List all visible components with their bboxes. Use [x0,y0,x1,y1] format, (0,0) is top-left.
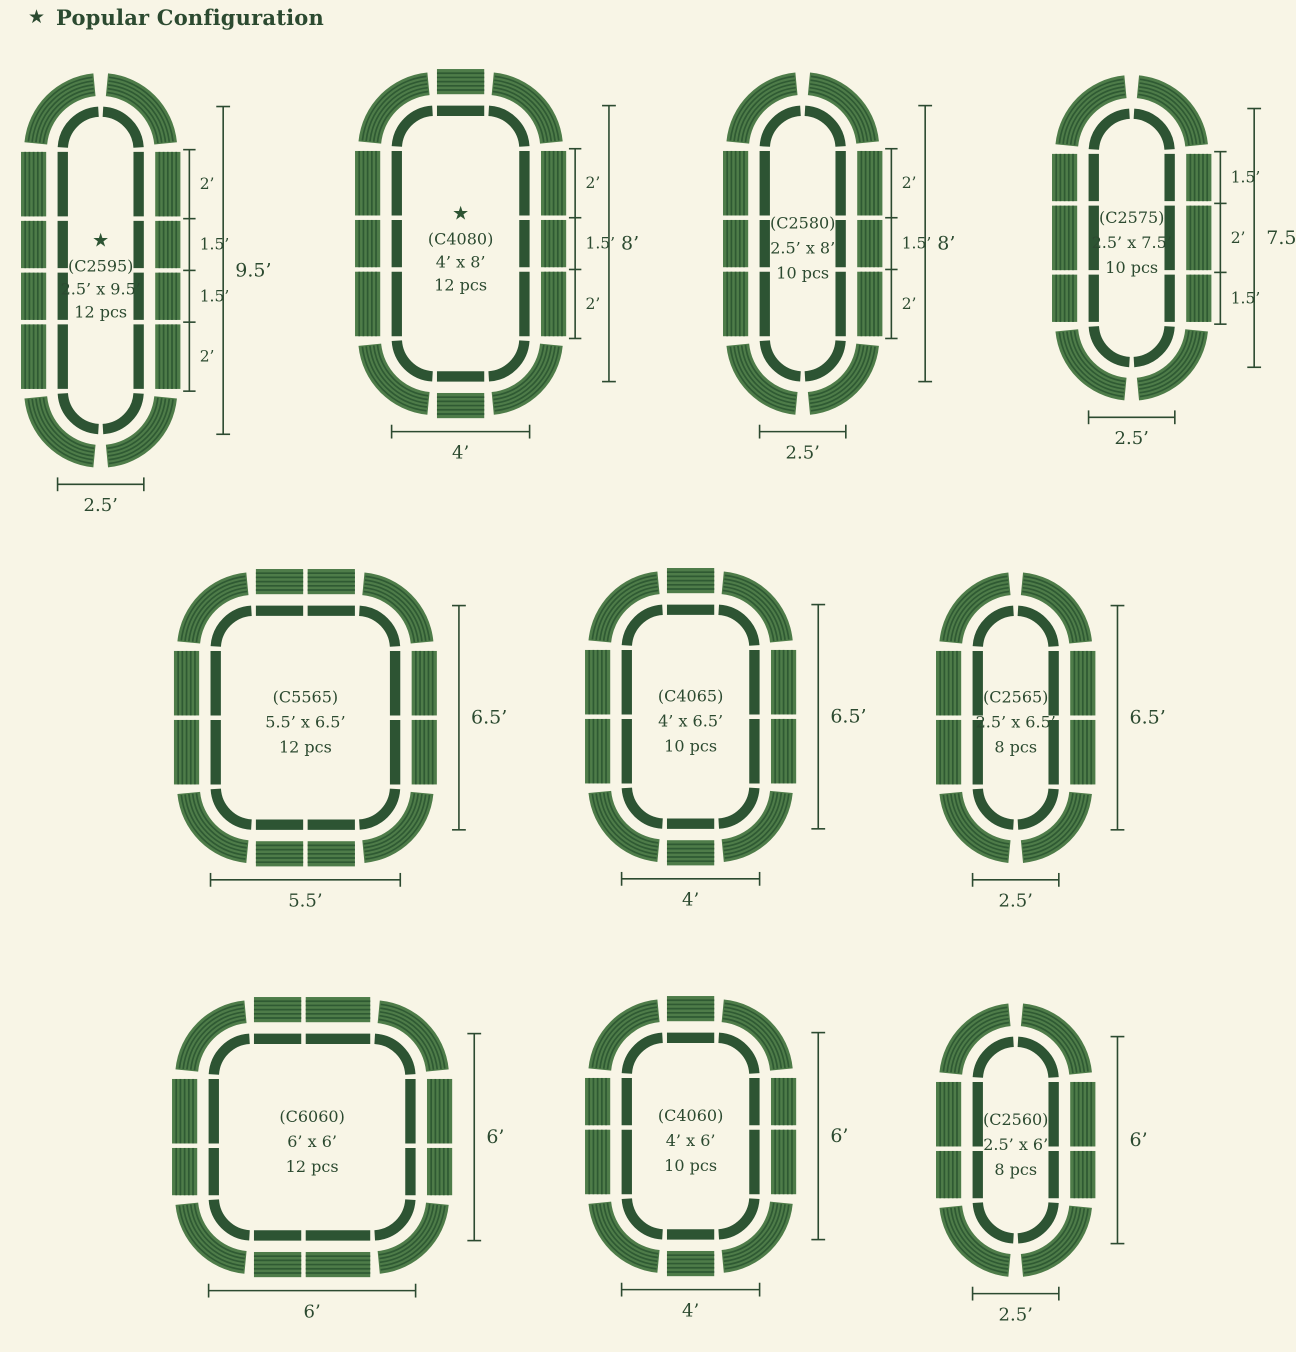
config-size-label: 2.5’ x 7.5’ [1092,233,1172,252]
config-pcs-label: 8 pcs [994,1160,1037,1179]
config-code-label: (C2560) [983,1110,1048,1129]
outline-corner [719,1038,755,1074]
outline-corner [216,789,252,825]
outline-corner [103,112,139,148]
dimensions: 6’4’ [622,1033,849,1322]
height-dimension-label: 6’ [1130,1129,1148,1151]
side-tick-label: 1.5’ [1231,289,1261,307]
config-size-label: 4’ x 8’ [436,253,486,272]
config-labels: (C5565)5.5’ x 6.5’12 pcs [265,688,345,757]
config-size-label: 5.5’ x 6.5’ [265,713,345,732]
outline-corner [627,610,663,646]
config-pcs-label: 10 pcs [664,1156,717,1175]
side-tick-label: 2’ [585,174,600,192]
config-pcs-label: 12 pcs [279,738,332,757]
config-code-label: (C2580) [770,214,835,233]
height-dimension-label: 6’ [486,1126,504,1148]
width-dimension-label: 2.5’ [999,891,1033,912]
config-pcs-label: 12 pcs [74,302,127,321]
outline-corner [397,341,433,377]
config-C6060-diagram: 6’6’(C6060)6’ x 6’12 pcs [162,987,531,1349]
side-tick-label: 2’ [1231,229,1246,247]
config-C2580-diagram: 8’2’1.5’2’2.5’(C2580)2.5’ x 8’10 pcs [713,59,996,490]
dimensions: 6.5’5.5’ [211,606,508,912]
config-code-label: (C4080) [428,230,493,249]
config-C4065-group: 6.5’4’(C4065)4’ x 6.5’10 pcs [585,568,867,911]
config-C4080-group: 8’2’1.5’2’4’★(C4080)4’ x 8’12 pcs [355,69,639,463]
outline-corner [719,788,755,824]
width-dimension-label: 5.5’ [288,891,322,912]
outline-corner [765,111,801,147]
config-C4060-group: 6’4’(C4060)4’ x 6’10 pcs [585,996,848,1321]
outline-corner [1134,114,1170,150]
config-labels: (C6060)6’ x 6’12 pcs [279,1107,344,1176]
config-C5565-group: 6.5’5.5’(C5565)5.5’ x 6.5’12 pcs [174,569,507,912]
width-dimension-label: 6’ [304,1302,321,1323]
height-dimension-label: 9.5’ [235,259,271,281]
outline-corner [214,1200,250,1236]
config-code-label: (C4060) [658,1106,723,1125]
config-pcs-label: 10 pcs [664,737,717,756]
outline-corner [719,1199,755,1235]
config-code-label: (C6060) [279,1107,344,1126]
outline-corner [1134,326,1170,362]
outline-corner [627,1199,663,1235]
height-dimension-label: 7.5’ [1266,227,1296,249]
config-labels: (C2575)2.5’ x 7.5’10 pcs [1092,208,1172,277]
config-C2565-diagram: 6.5’2.5’(C2565)2.5’ x 6.5’8 pcs [926,559,1174,939]
config-C2565-group: 6.5’2.5’(C2565)2.5’ x 6.5’8 pcs [936,572,1166,911]
dimensions: 6’6’ [209,1034,505,1323]
config-size-label: 6’ x 6’ [287,1132,337,1151]
width-dimension-label: 4’ [452,443,469,464]
config-labels: (C4065)4’ x 6.5’10 pcs [658,687,723,756]
config-C2560-diagram: 6’2.5’(C2560)2.5’ x 6’8 pcs [926,990,1174,1352]
config-C2575-diagram: 7.5’1.5’2’1.5’2.5’(C2575)2.5’ x 7.5’10 p… [1042,62,1296,476]
config-pcs-label: 8 pcs [994,738,1037,757]
config-labels: ★(C4080)4’ x 8’12 pcs [428,203,493,295]
outline-corner [214,1039,250,1075]
height-dimension-label: 6.5’ [830,706,866,728]
outline-corner [489,341,525,377]
outline-corner [1018,789,1054,825]
width-dimension-label: 2.5’ [999,1305,1033,1326]
outline-corner [627,788,663,824]
dimensions: 6’2.5’ [973,1037,1148,1326]
outline-corner [63,393,99,429]
configuration-sheet: ★ Popular Configuration 9.5’2’1.5’1.5’2’… [0,0,1296,1327]
side-tick-label: 1.5’ [585,235,615,253]
config-labels: (C4060)4’ x 6’10 pcs [658,1106,723,1175]
side-tick-label: 2’ [902,174,917,192]
width-dimension-label: 4’ [682,1301,699,1322]
height-dimension-label: 6.5’ [471,707,507,729]
config-pcs-label: 10 pcs [1105,258,1158,277]
width-dimension-label: 2.5’ [786,443,820,464]
config-C4060-diagram: 6’4’(C4060)4’ x 6’10 pcs [575,986,875,1348]
height-dimension-label: 8’ [621,233,639,255]
config-labels: (C2565)2.5’ x 6.5’8 pcs [976,688,1056,757]
side-tick-label: 1.5’ [200,287,230,305]
config-code-label: (C2565) [983,688,1048,707]
config-C5565-diagram: 6.5’5.5’(C5565)5.5’ x 6.5’12 pcs [164,559,516,939]
config-C2595-diagram: 9.5’2’1.5’1.5’2’2.5’★(C2595)2.5’ x 9.5’1… [11,60,294,543]
outline-corner [627,1038,663,1074]
outline-corner [63,112,99,148]
outline-corner [805,111,841,147]
outline-corner [489,111,525,147]
outline-corner [1018,1203,1054,1239]
side-tick-label: 2’ [200,348,215,366]
height-dimension-label: 6.5’ [1130,707,1166,729]
config-size-label: 2.5’ x 9.5’ [61,279,141,298]
outline-corner [375,1200,411,1236]
outline-corner [397,111,433,147]
outline-corner [978,789,1014,825]
height-dimension-label: 6’ [830,1125,848,1147]
config-C2575-group: 7.5’1.5’2’1.5’2.5’(C2575)2.5’ x 7.5’10 p… [1052,75,1296,449]
side-tick-label: 2’ [902,295,917,313]
side-tick-label: 1.5’ [1231,169,1261,187]
popular-star-icon: ★ [452,203,469,225]
dimensions: 6.5’4’ [622,605,867,911]
config-size-label: 2.5’ x 8’ [770,239,835,258]
config-labels: (C2560)2.5’ x 6’8 pcs [983,1110,1048,1179]
legend-label: Popular Configuration [56,5,324,30]
outline-corner [1018,1042,1054,1078]
config-C2580-group: 8’2’1.5’2’2.5’(C2580)2.5’ x 8’10 pcs [723,72,955,463]
config-size-label: 2.5’ x 6.5’ [976,713,1056,732]
outline-corner [1094,114,1130,150]
config-C4065-diagram: 6.5’4’(C4065)4’ x 6.5’10 pcs [575,558,875,938]
config-size-label: 2.5’ x 6’ [983,1135,1048,1154]
outline-corner [216,611,252,647]
config-C2595-group: 9.5’2’1.5’1.5’2’2.5’★(C2595)2.5’ x 9.5’1… [21,73,272,516]
config-pcs-label: 12 pcs [286,1157,339,1176]
config-code-label: (C5565) [273,688,338,707]
outline-corner [978,611,1014,647]
config-labels: (C2580)2.5’ x 8’10 pcs [770,214,835,283]
popular-configuration-legend: ★ Popular Configuration [28,5,324,30]
popular-star-icon: ★ [92,229,109,251]
side-tick-label: 1.5’ [902,235,932,253]
config-C6060-group: 6’6’(C6060)6’ x 6’12 pcs [172,997,504,1322]
config-code-label: (C2575) [1099,208,1164,227]
width-dimension-label: 2.5’ [1115,428,1149,449]
outline-corner [719,610,755,646]
config-pcs-label: 12 pcs [434,276,487,295]
config-pcs-label: 10 pcs [776,264,829,283]
outline-corner [359,611,395,647]
outline-corner [375,1039,411,1075]
side-tick-label: 1.5’ [200,236,230,254]
config-labels: ★(C2595)2.5’ x 9.5’12 pcs [61,229,141,321]
outline-corner [978,1203,1014,1239]
side-tick-label: 2’ [585,295,600,313]
config-code-label: (C4065) [658,687,723,706]
star-icon: ★ [28,8,45,27]
height-dimension-label: 8’ [937,233,955,255]
dimensions: 8’2’1.5’2’4’ [392,106,640,464]
config-C4080-diagram: 8’2’1.5’2’4’★(C4080)4’ x 8’12 pcs [345,59,680,490]
outline-corner [978,1042,1014,1078]
dimensions: 6.5’2.5’ [973,606,1166,912]
side-tick-label: 2’ [200,175,215,193]
outline-corner [1094,326,1130,362]
config-size-label: 4’ x 6.5’ [658,712,723,731]
outline-corner [805,341,841,377]
width-dimension-label: 2.5’ [84,495,118,516]
width-dimension-label: 4’ [682,890,699,911]
outline-corner [103,393,139,429]
outline-corner [765,341,801,377]
config-size-label: 4’ x 6’ [666,1131,716,1150]
outline-corner [359,789,395,825]
config-C2560-group: 6’2.5’(C2560)2.5’ x 6’8 pcs [936,1003,1148,1325]
config-code-label: (C2595) [68,256,133,275]
outline-corner [1018,611,1054,647]
